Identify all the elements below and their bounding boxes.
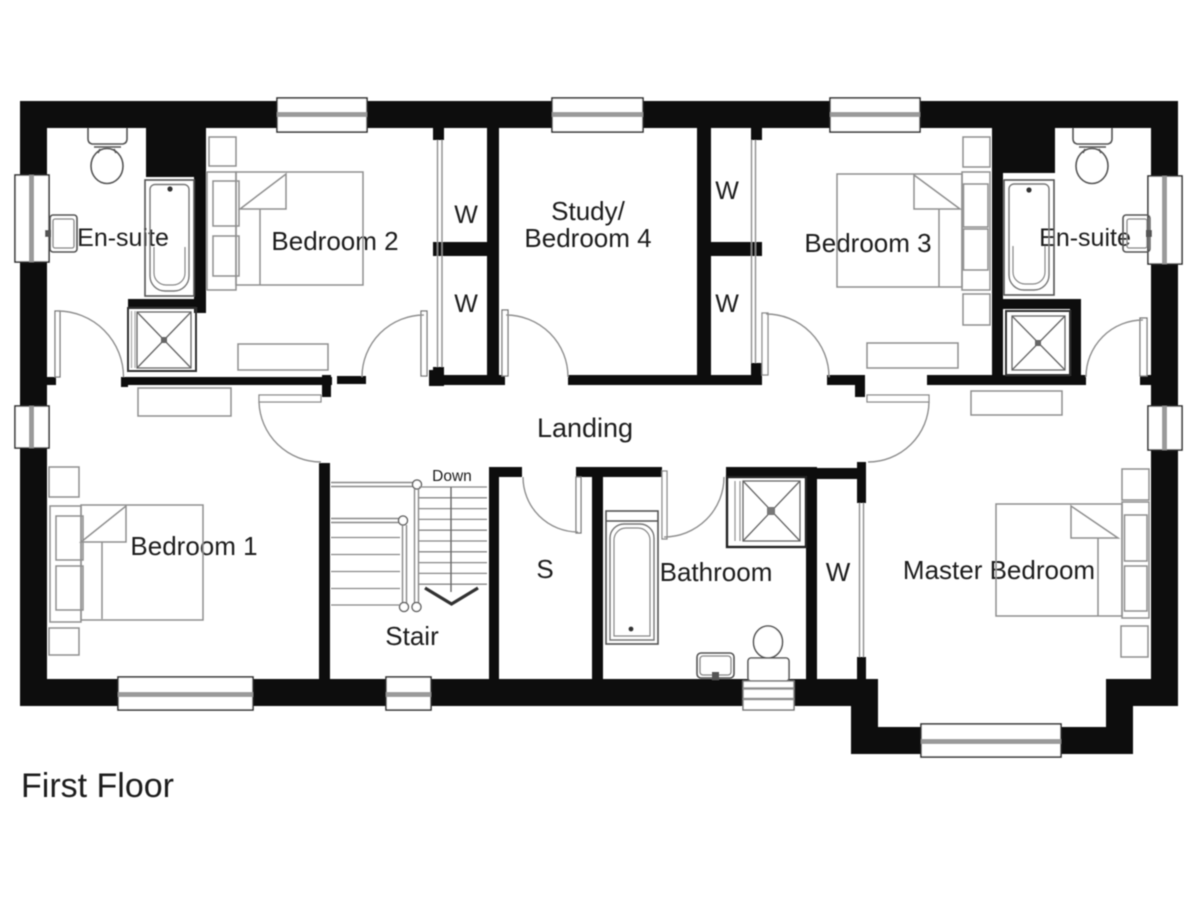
svg-text:S: S bbox=[536, 554, 553, 584]
svg-text:Study/: Study/ bbox=[551, 196, 625, 226]
svg-text:Bedroom 4: Bedroom 4 bbox=[524, 223, 651, 253]
svg-text:Master Bedroom: Master Bedroom bbox=[903, 555, 1095, 585]
svg-text:W: W bbox=[454, 290, 478, 318]
svg-text:Landing: Landing bbox=[537, 413, 633, 443]
svg-text:W: W bbox=[715, 290, 739, 318]
svg-text:Bedroom 3: Bedroom 3 bbox=[804, 228, 931, 258]
svg-text:W: W bbox=[454, 201, 478, 229]
svg-text:En-suite: En-suite bbox=[77, 224, 169, 252]
svg-text:Stair: Stair bbox=[385, 621, 439, 651]
svg-text:Down: Down bbox=[432, 468, 472, 485]
svg-text:W: W bbox=[715, 177, 739, 205]
svg-text:W: W bbox=[826, 557, 851, 587]
svg-text:First Floor: First Floor bbox=[21, 767, 174, 805]
svg-text:Bathroom: Bathroom bbox=[660, 557, 773, 587]
svg-text:Bedroom 1: Bedroom 1 bbox=[130, 531, 257, 561]
svg-text:Bedroom 2: Bedroom 2 bbox=[271, 226, 398, 256]
svg-text:En-suite: En-suite bbox=[1039, 224, 1131, 252]
